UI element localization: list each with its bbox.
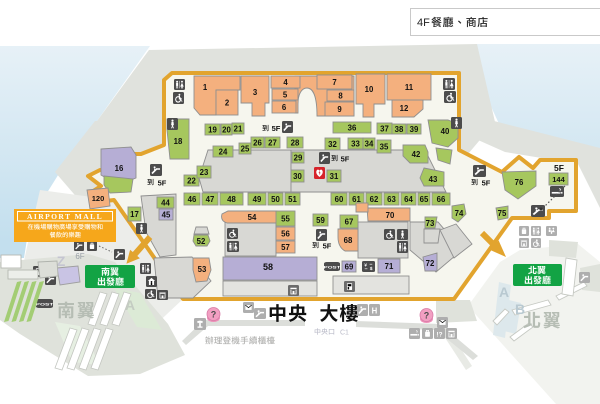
svg-text:53: 53: [198, 265, 207, 274]
svg-text:4: 4: [283, 78, 288, 87]
svg-text:58: 58: [263, 262, 273, 272]
svg-text:22: 22: [187, 177, 196, 186]
svg-text:5F: 5F: [323, 242, 332, 251]
svg-text:9: 9: [337, 105, 342, 114]
svg-text:6F: 6F: [75, 252, 84, 261]
svg-text:73: 73: [426, 219, 435, 228]
svg-text:66: 66: [437, 195, 446, 204]
svg-text:67: 67: [345, 218, 354, 227]
svg-text:75: 75: [498, 209, 507, 218]
svg-text:B: B: [515, 301, 525, 317]
svg-text:45: 45: [162, 211, 171, 220]
svg-text:28: 28: [291, 139, 300, 148]
svg-text:20: 20: [222, 126, 231, 135]
svg-text:51: 51: [288, 195, 297, 204]
svg-text:C1: C1: [340, 330, 349, 337]
svg-text:68: 68: [344, 236, 353, 245]
svg-text:26: 26: [253, 139, 262, 148]
svg-text:55: 55: [281, 215, 290, 224]
svg-text:64: 64: [404, 195, 413, 204]
svg-text:34: 34: [365, 140, 374, 149]
svg-text:120: 120: [92, 194, 105, 203]
svg-text:32: 32: [328, 140, 337, 149]
svg-text:6: 6: [282, 103, 287, 112]
svg-text:42: 42: [412, 150, 421, 159]
svg-text:63: 63: [387, 195, 396, 204]
svg-text:47: 47: [206, 195, 215, 204]
svg-text:33: 33: [351, 140, 360, 149]
svg-text:5F: 5F: [272, 124, 281, 133]
svg-text:11: 11: [405, 83, 414, 92]
svg-text:62: 62: [370, 195, 379, 204]
svg-text:54: 54: [248, 213, 257, 222]
svg-text:43: 43: [429, 175, 438, 184]
svg-text:49: 49: [253, 195, 262, 204]
svg-text:5F: 5F: [482, 179, 491, 188]
svg-text:10: 10: [365, 85, 374, 94]
svg-text:44: 44: [161, 199, 170, 208]
svg-text:60: 60: [335, 195, 344, 204]
svg-text:35: 35: [380, 143, 389, 152]
svg-text:5F: 5F: [158, 179, 167, 188]
svg-text:21: 21: [234, 125, 243, 134]
svg-text:70: 70: [386, 211, 395, 220]
svg-text:36: 36: [348, 124, 357, 133]
svg-text:A: A: [125, 297, 135, 313]
svg-text:8: 8: [338, 92, 343, 101]
svg-text:24: 24: [219, 148, 228, 157]
svg-text:30: 30: [293, 172, 302, 181]
svg-text:18: 18: [174, 137, 183, 146]
svg-text:3: 3: [253, 88, 258, 97]
svg-text:5F: 5F: [341, 155, 350, 164]
svg-text:50: 50: [271, 195, 280, 204]
svg-text:52: 52: [197, 237, 206, 246]
svg-text:37: 37: [380, 125, 389, 134]
svg-text:48: 48: [227, 195, 236, 204]
svg-text:57: 57: [281, 243, 290, 252]
svg-text:74: 74: [455, 209, 464, 218]
svg-text:23: 23: [200, 168, 209, 177]
svg-text:46: 46: [188, 195, 197, 204]
svg-text:69: 69: [345, 263, 354, 272]
svg-text:29: 29: [294, 154, 303, 163]
svg-text:27: 27: [268, 139, 277, 148]
svg-text:16: 16: [115, 164, 124, 173]
svg-text:17: 17: [130, 210, 139, 219]
svg-text:?: ?: [211, 310, 217, 320]
svg-text:2: 2: [225, 99, 230, 108]
svg-text:38: 38: [395, 125, 404, 134]
svg-text:56: 56: [281, 230, 290, 239]
svg-text:59: 59: [316, 216, 325, 225]
svg-text:40: 40: [441, 127, 450, 136]
svg-text:4F: 4F: [417, 17, 430, 29]
svg-text:7: 7: [332, 78, 336, 87]
svg-text:5: 5: [283, 91, 288, 100]
svg-text:76: 76: [515, 178, 524, 187]
svg-text:?: ?: [424, 311, 430, 321]
svg-text:5F: 5F: [554, 163, 564, 173]
svg-text:19: 19: [208, 126, 217, 135]
svg-text:1: 1: [203, 83, 208, 92]
svg-text:39: 39: [410, 125, 419, 134]
svg-text:144: 144: [552, 175, 565, 184]
svg-text:31: 31: [330, 172, 339, 181]
svg-text:71: 71: [385, 262, 394, 271]
svg-text:12: 12: [400, 104, 409, 113]
svg-text:65: 65: [420, 195, 429, 204]
svg-text:Z: Z: [57, 253, 66, 269]
svg-text:AIRPORT MALL: AIRPORT MALL: [27, 212, 103, 221]
svg-text:25: 25: [241, 145, 250, 154]
svg-text:A: A: [499, 284, 509, 300]
svg-text:72: 72: [426, 259, 435, 268]
